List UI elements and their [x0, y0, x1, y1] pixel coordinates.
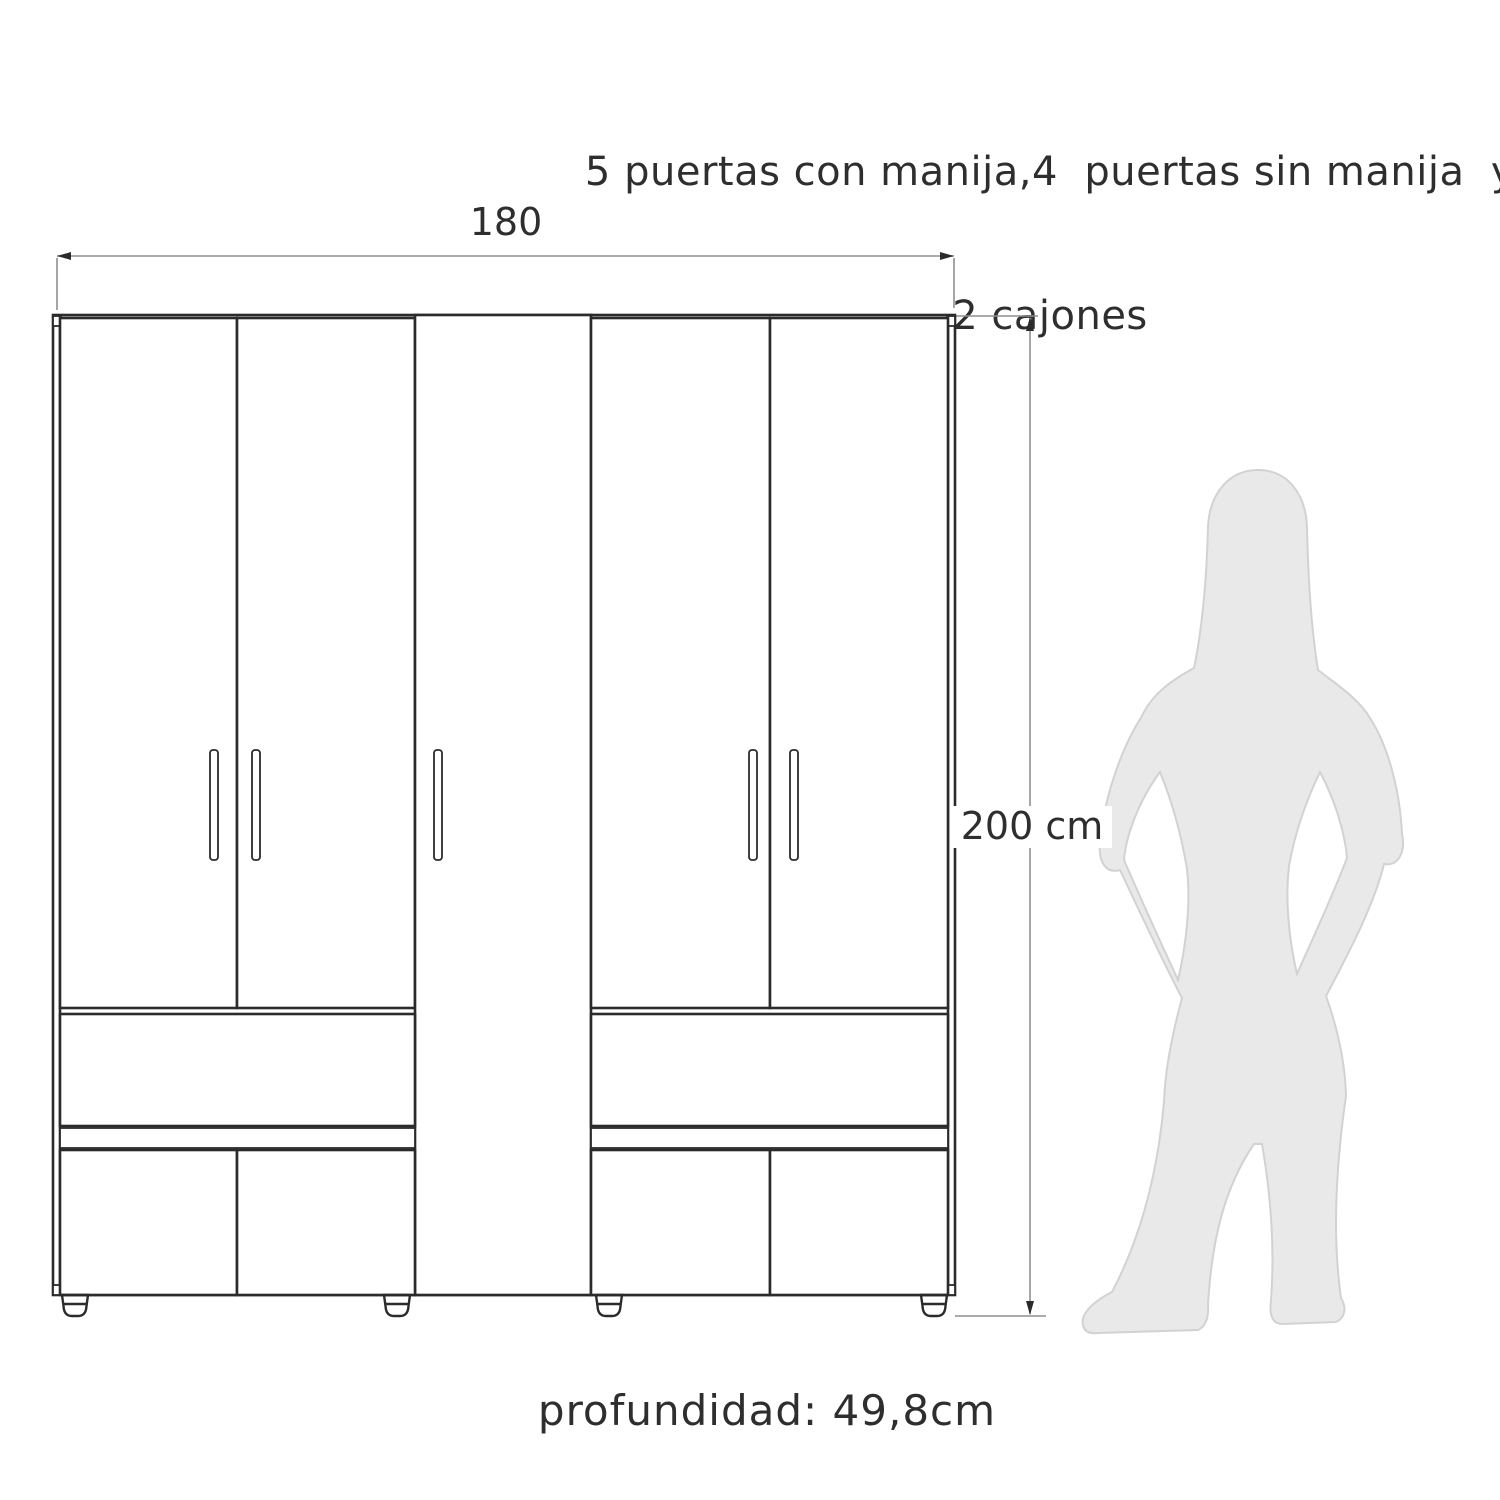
depth-dimension-label: profundidad: 49,8cm	[467, 1386, 1067, 1435]
diagram-page: 5 puertas con manija,4 puertas sin manij…	[0, 0, 1500, 1500]
wardrobe-foot	[596, 1295, 622, 1316]
door-handle	[434, 750, 442, 860]
feet	[62, 1295, 947, 1316]
wardrobe-technical-drawing	[0, 0, 1500, 1500]
wardrobe-foot	[921, 1295, 947, 1316]
wardrobe-foot	[384, 1295, 410, 1316]
door-right-2	[770, 318, 948, 1008]
door-left-2	[237, 318, 415, 1008]
bottom-door-right-1	[591, 1150, 770, 1295]
plinth-strip-right	[591, 1128, 948, 1148]
width-dimension-label: 180	[406, 200, 606, 244]
door-handle	[790, 750, 798, 860]
bottom-door-left-1	[60, 1150, 237, 1295]
arrow-left-icon	[57, 252, 71, 260]
plinth-strip-left	[60, 1128, 415, 1148]
bottom-door-right-2	[770, 1150, 948, 1295]
wardrobe-foot	[62, 1295, 88, 1316]
bottom-door-left-2	[237, 1150, 415, 1295]
woman-silhouette	[1083, 470, 1403, 1333]
arrow-down-icon	[1026, 1301, 1034, 1315]
door-left-1	[60, 318, 237, 1008]
arrow-right-icon	[940, 252, 954, 260]
door-handle	[749, 750, 757, 860]
human-scale-figure	[1083, 470, 1403, 1333]
arrow-up-icon	[1026, 317, 1034, 331]
drawer-left	[60, 1014, 415, 1126]
door-handle	[252, 750, 260, 860]
height-dimension-label: 200 cm	[952, 806, 1112, 848]
door-handle	[210, 750, 218, 860]
width-dimension	[57, 252, 954, 310]
door-right-1	[591, 318, 770, 1008]
drawer-right	[591, 1014, 948, 1126]
